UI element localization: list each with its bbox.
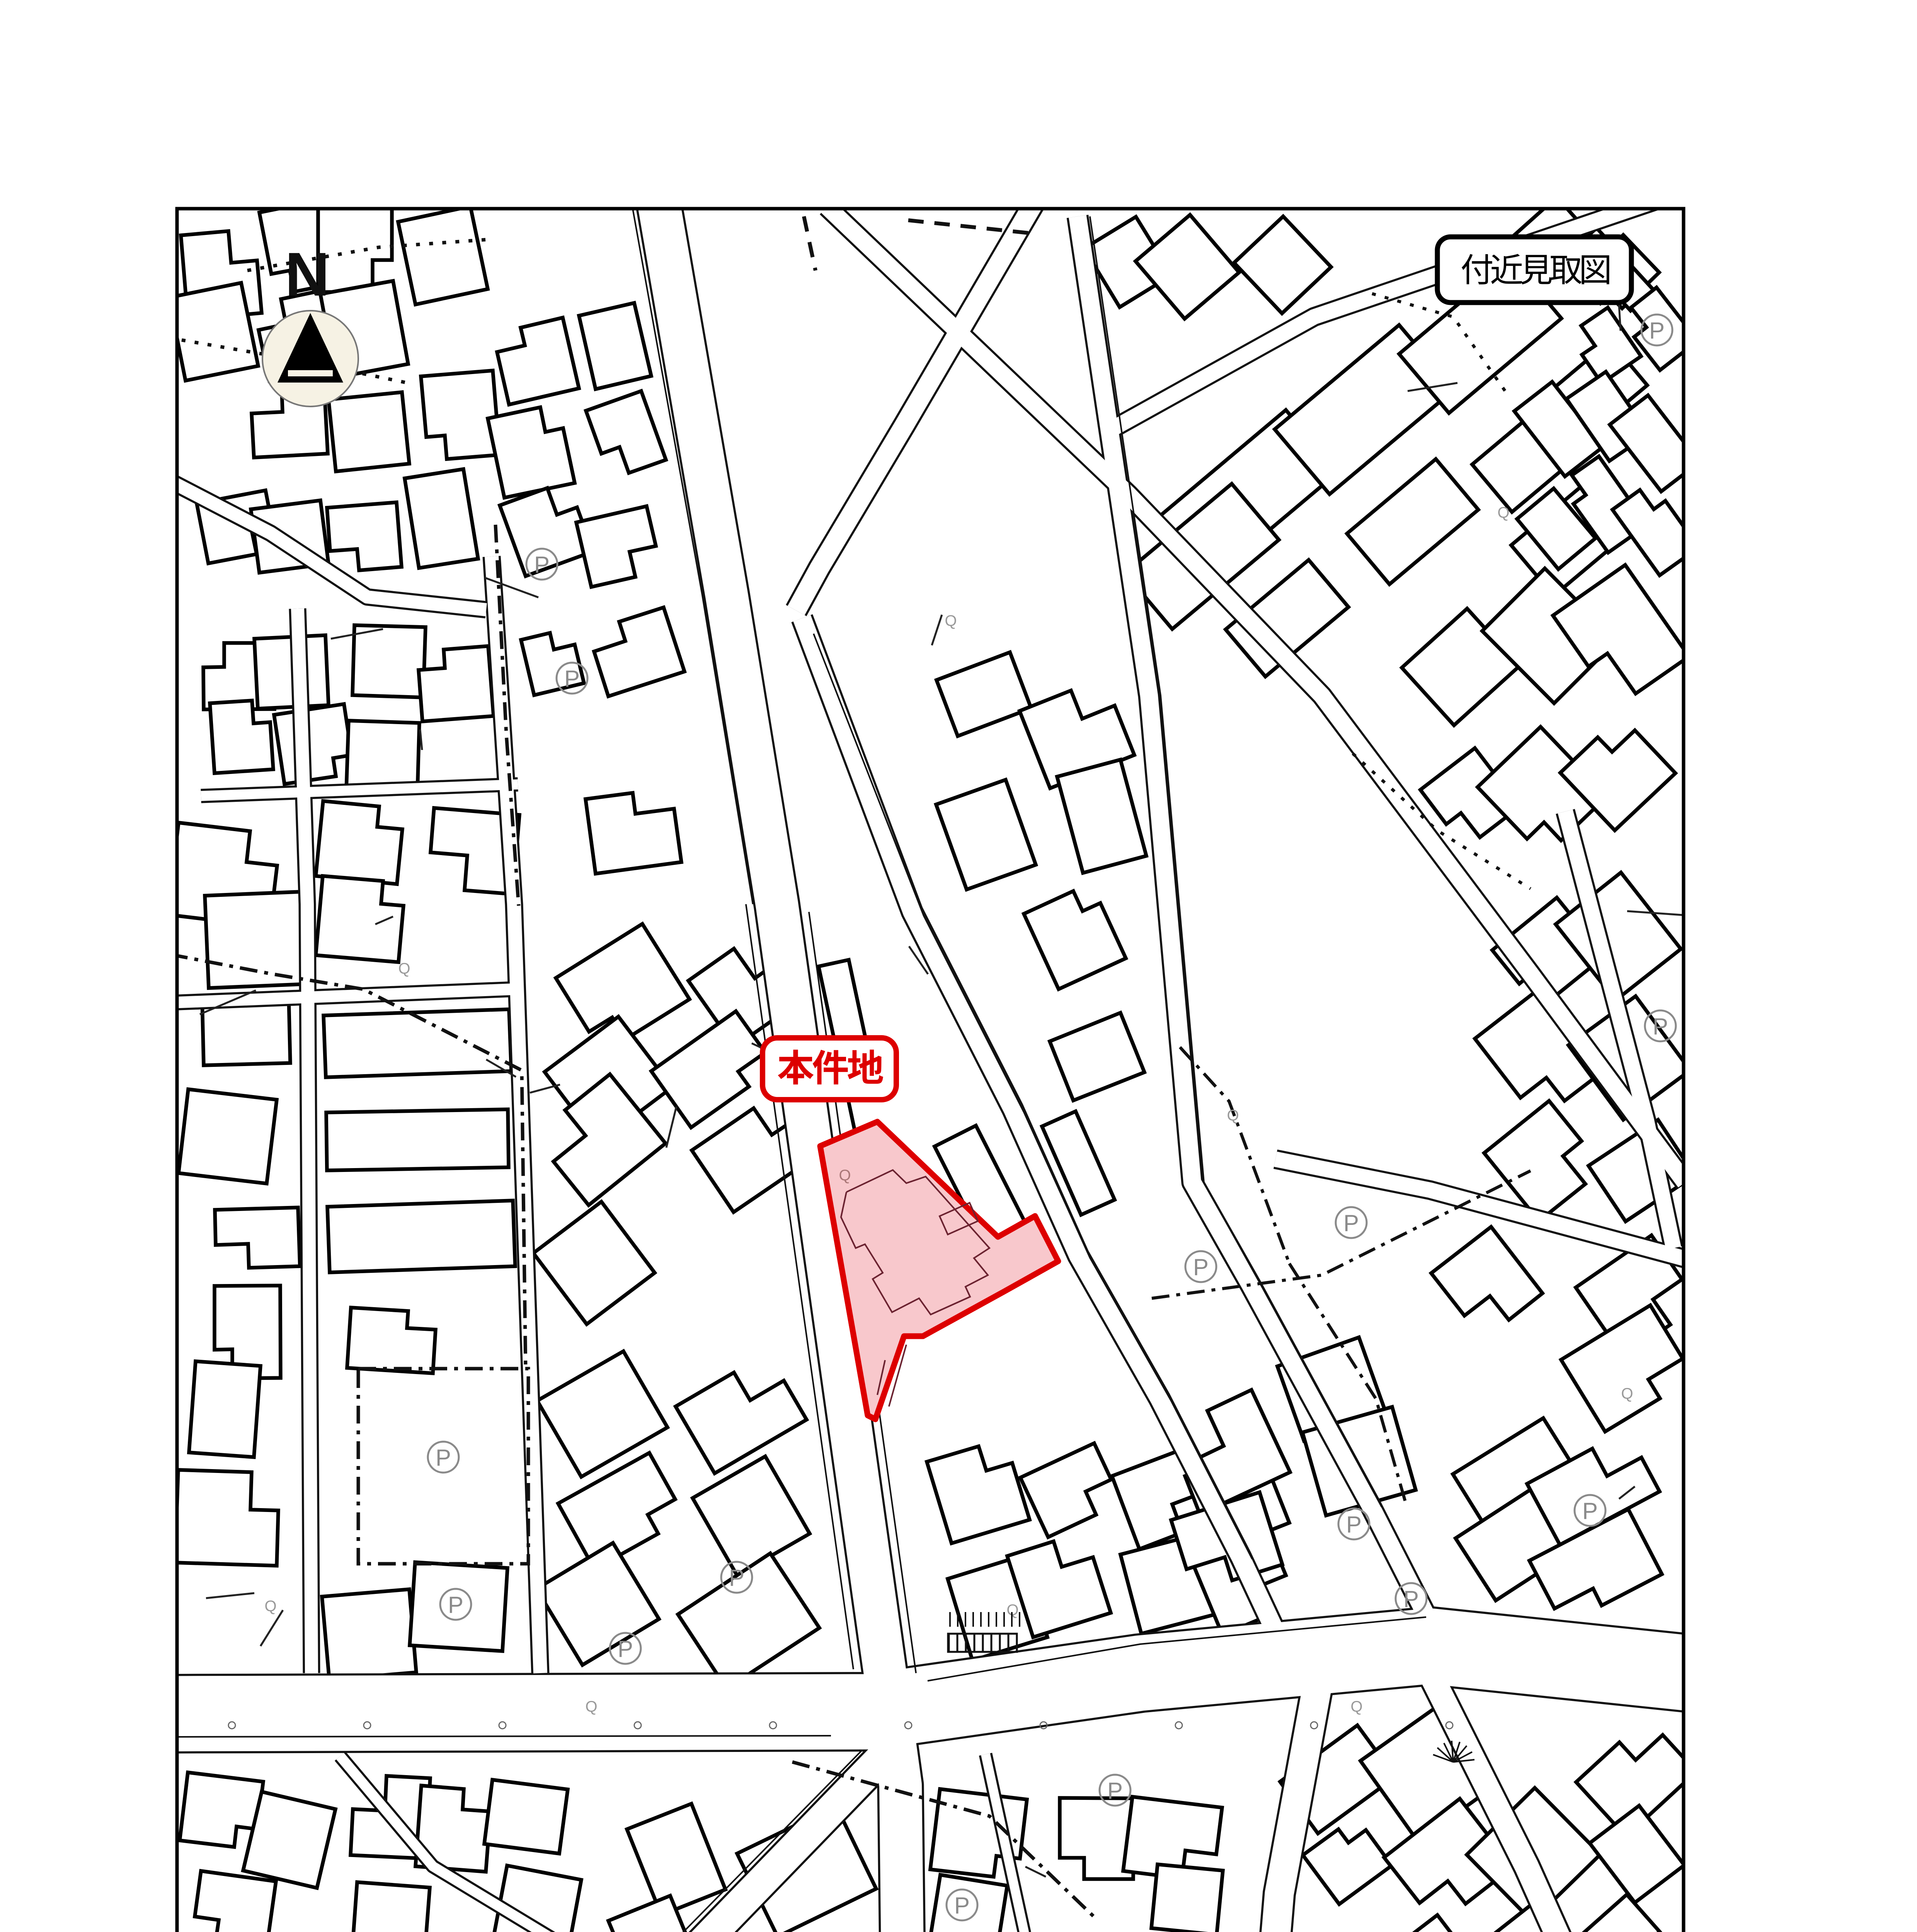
svg-text:Q: Q: [264, 1598, 276, 1615]
svg-text:P: P: [534, 552, 550, 578]
svg-text:Q: Q: [585, 1698, 597, 1715]
svg-text:P: P: [448, 1592, 463, 1618]
svg-text:Q: Q: [398, 960, 410, 977]
svg-text:P: P: [618, 1636, 633, 1662]
svg-text:Q: Q: [1497, 504, 1509, 521]
svg-text:P: P: [1582, 1498, 1598, 1524]
svg-text:P: P: [729, 1565, 744, 1591]
svg-text:P: P: [1653, 1014, 1668, 1039]
svg-text:N: N: [285, 240, 330, 309]
svg-text:Q: Q: [1227, 1107, 1239, 1124]
svg-text:Q: Q: [1621, 1385, 1633, 1402]
svg-text:P: P: [564, 666, 580, 692]
svg-text:P: P: [1403, 1586, 1419, 1612]
svg-text:Q: Q: [945, 612, 957, 629]
svg-text:P: P: [1107, 1778, 1123, 1804]
svg-text:P: P: [1649, 318, 1665, 344]
svg-text:P: P: [436, 1445, 451, 1471]
svg-text:P: P: [1343, 1210, 1359, 1236]
svg-text:Q: Q: [839, 1167, 851, 1184]
svg-text:Q: Q: [1350, 1698, 1362, 1715]
svg-text:P: P: [954, 1893, 970, 1918]
svg-text:P: P: [1346, 1512, 1362, 1537]
svg-text:P: P: [1193, 1254, 1209, 1280]
